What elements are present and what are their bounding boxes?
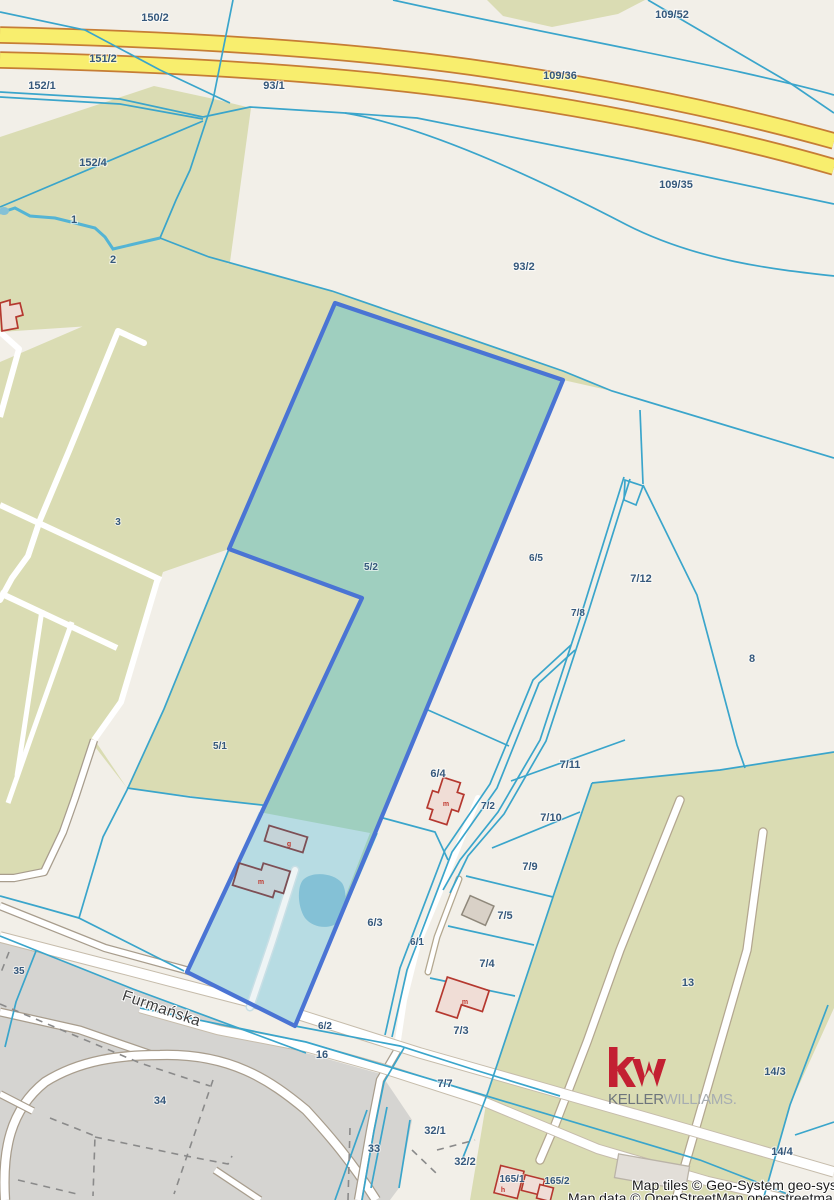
svg-text:165/2: 165/2 bbox=[544, 1176, 569, 1187]
svg-text:7/2: 7/2 bbox=[481, 801, 495, 812]
svg-text:34: 34 bbox=[154, 1095, 167, 1107]
svg-text:6/3: 6/3 bbox=[367, 917, 382, 929]
svg-text:14/3: 14/3 bbox=[764, 1066, 785, 1078]
svg-text:16: 16 bbox=[316, 1049, 328, 1061]
svg-text:6/1: 6/1 bbox=[410, 937, 424, 948]
svg-text:KELLERWILLIAMS.: KELLERWILLIAMS. bbox=[608, 1091, 737, 1108]
svg-text:3: 3 bbox=[115, 517, 121, 528]
svg-text:6/5: 6/5 bbox=[529, 553, 543, 564]
svg-text:2: 2 bbox=[110, 254, 116, 266]
svg-text:152/1: 152/1 bbox=[28, 80, 56, 92]
svg-text:7/5: 7/5 bbox=[497, 910, 512, 922]
svg-text:93/2: 93/2 bbox=[513, 261, 534, 273]
svg-text:7/9: 7/9 bbox=[522, 861, 537, 873]
svg-text:109/52: 109/52 bbox=[655, 9, 689, 21]
svg-text:7/11: 7/11 bbox=[560, 759, 581, 771]
svg-text:13: 13 bbox=[682, 977, 694, 989]
svg-text:h: h bbox=[501, 1187, 505, 1194]
svg-text:32/1: 32/1 bbox=[424, 1125, 445, 1137]
svg-text:Map data © OpenStreetMap opens: Map data © OpenStreetMap openstreetma bbox=[568, 1190, 833, 1200]
svg-text:93/1: 93/1 bbox=[263, 80, 284, 92]
svg-text:7/4: 7/4 bbox=[479, 958, 495, 970]
svg-text:33: 33 bbox=[368, 1143, 380, 1155]
svg-text:109/35: 109/35 bbox=[659, 179, 693, 191]
svg-text:7/7: 7/7 bbox=[437, 1078, 452, 1090]
svg-text:5/1: 5/1 bbox=[213, 741, 227, 752]
svg-text:109/36: 109/36 bbox=[543, 70, 577, 82]
svg-text:7/8: 7/8 bbox=[571, 608, 585, 619]
svg-text:m: m bbox=[462, 999, 468, 1006]
svg-text:m: m bbox=[258, 879, 264, 886]
svg-text:8: 8 bbox=[749, 653, 755, 665]
svg-text:165/1: 165/1 bbox=[499, 1174, 524, 1185]
svg-text:6/4: 6/4 bbox=[430, 768, 446, 780]
svg-text:151/2: 151/2 bbox=[89, 53, 117, 65]
svg-text:35: 35 bbox=[13, 966, 25, 977]
svg-text:32/2: 32/2 bbox=[454, 1156, 475, 1168]
svg-text:152/4: 152/4 bbox=[79, 157, 107, 169]
svg-text:m: m bbox=[443, 801, 449, 808]
svg-text:7/10: 7/10 bbox=[540, 812, 561, 824]
svg-text:6/2: 6/2 bbox=[318, 1021, 332, 1032]
svg-text:7/3: 7/3 bbox=[453, 1025, 468, 1037]
svg-text:g: g bbox=[287, 841, 291, 848]
svg-text:14/4: 14/4 bbox=[771, 1146, 793, 1158]
svg-text:150/2: 150/2 bbox=[141, 12, 169, 24]
svg-text:1: 1 bbox=[71, 214, 77, 226]
svg-text:5/2: 5/2 bbox=[364, 562, 378, 573]
svg-text:7/12: 7/12 bbox=[630, 573, 651, 585]
